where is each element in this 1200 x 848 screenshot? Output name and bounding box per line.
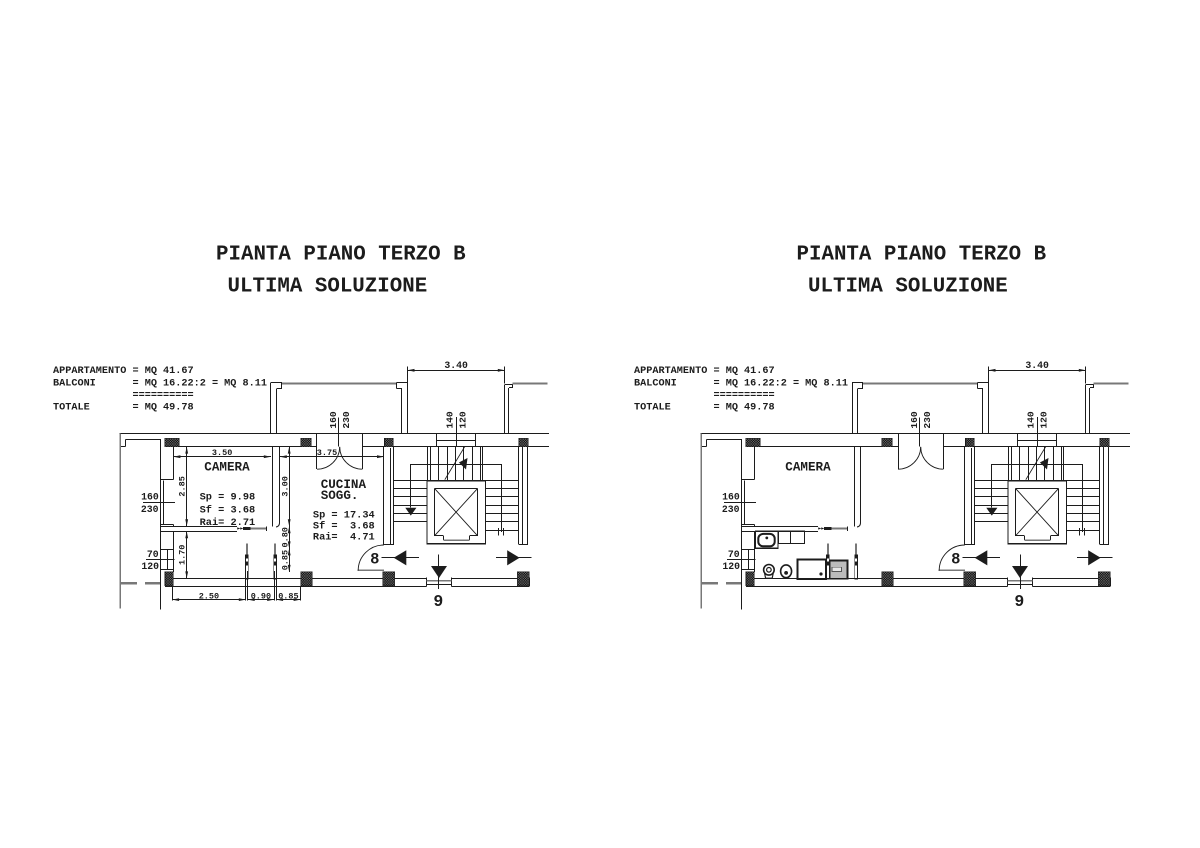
svg-text:70: 70 (728, 549, 740, 560)
svg-text:CAMERA: CAMERA (204, 460, 250, 474)
svg-text:TOTALE = MQ 49.78: TOTALE = MQ 49.78 (634, 402, 775, 413)
svg-text:120: 120 (141, 561, 159, 572)
svg-text:8: 8 (951, 550, 960, 568)
svg-text:0.85: 0.85 (281, 550, 291, 570)
svg-text:160: 160 (328, 411, 339, 429)
svg-text:3.40: 3.40 (444, 360, 468, 371)
svg-text:TOTALE = MQ 49.78: TOTALE = MQ 49.78 (53, 402, 194, 413)
svg-text:2.85: 2.85 (177, 476, 187, 496)
svg-text:9: 9 (1014, 592, 1024, 611)
svg-text:160: 160 (141, 492, 159, 503)
svg-text:160: 160 (909, 411, 920, 429)
svg-text:APPARTAMENTO = MQ 41.67: APPARTAMENTO = MQ 41.67 (53, 366, 194, 377)
svg-text:BALCONI = MQ 16.22:2 = MQ: BALCONI = MQ 16.22:2 = MQ 8.11 (634, 379, 848, 390)
svg-text:120: 120 (1038, 411, 1049, 429)
svg-text:CAMERA: CAMERA (785, 460, 831, 474)
svg-text:160: 160 (722, 492, 740, 503)
svg-text:0.80: 0.80 (281, 527, 291, 547)
svg-text:ULTIMA SOLUZIONE: ULTIMA SOLUZIONE (228, 276, 428, 299)
svg-text:APPARTAMENTO = MQ 41.67: APPARTAMENTO = MQ 41.67 (634, 366, 775, 377)
svg-text:230: 230 (922, 411, 933, 429)
svg-text:8: 8 (370, 550, 379, 568)
svg-text:==========: ========== (53, 390, 194, 401)
svg-text:230: 230 (722, 504, 740, 515)
svg-text:Rai= 4.71: Rai= 4.71 (313, 531, 375, 543)
svg-text:Sp = 9.98: Sp = 9.98 (200, 491, 256, 503)
svg-text:0.90: 0.90 (251, 591, 271, 601)
svg-text:PIANTA PIANO TERZO B: PIANTA PIANO TERZO B (216, 244, 466, 267)
svg-text:Rai= 2.71: Rai= 2.71 (200, 517, 256, 529)
svg-text:2.50: 2.50 (199, 591, 219, 601)
svg-text:120: 120 (722, 561, 740, 572)
svg-text:3.50: 3.50 (212, 448, 232, 458)
svg-text:70: 70 (147, 549, 159, 560)
svg-text:0.85: 0.85 (278, 591, 298, 601)
svg-text:140: 140 (1025, 411, 1036, 429)
svg-text:Sf = 3.68: Sf = 3.68 (200, 504, 256, 516)
svg-text:1.70: 1.70 (177, 545, 187, 565)
svg-text:SOGG.: SOGG. (321, 489, 359, 503)
svg-text:3.00: 3.00 (281, 476, 291, 496)
svg-text:==========: ========== (634, 390, 775, 401)
svg-text:140: 140 (444, 411, 455, 429)
svg-text:9: 9 (433, 592, 443, 611)
svg-text:ULTIMA SOLUZIONE: ULTIMA SOLUZIONE (808, 276, 1008, 299)
svg-text:3.40: 3.40 (1025, 360, 1049, 371)
svg-text:PIANTA PIANO TERZO B: PIANTA PIANO TERZO B (797, 244, 1047, 267)
svg-text:230: 230 (141, 504, 159, 515)
svg-text:230: 230 (341, 411, 352, 429)
svg-text:120: 120 (457, 411, 468, 429)
svg-text:3.75: 3.75 (317, 448, 337, 458)
svg-text:BALCONI = MQ 16.22:2 = MQ: BALCONI = MQ 16.22:2 = MQ 8.11 (53, 379, 267, 390)
